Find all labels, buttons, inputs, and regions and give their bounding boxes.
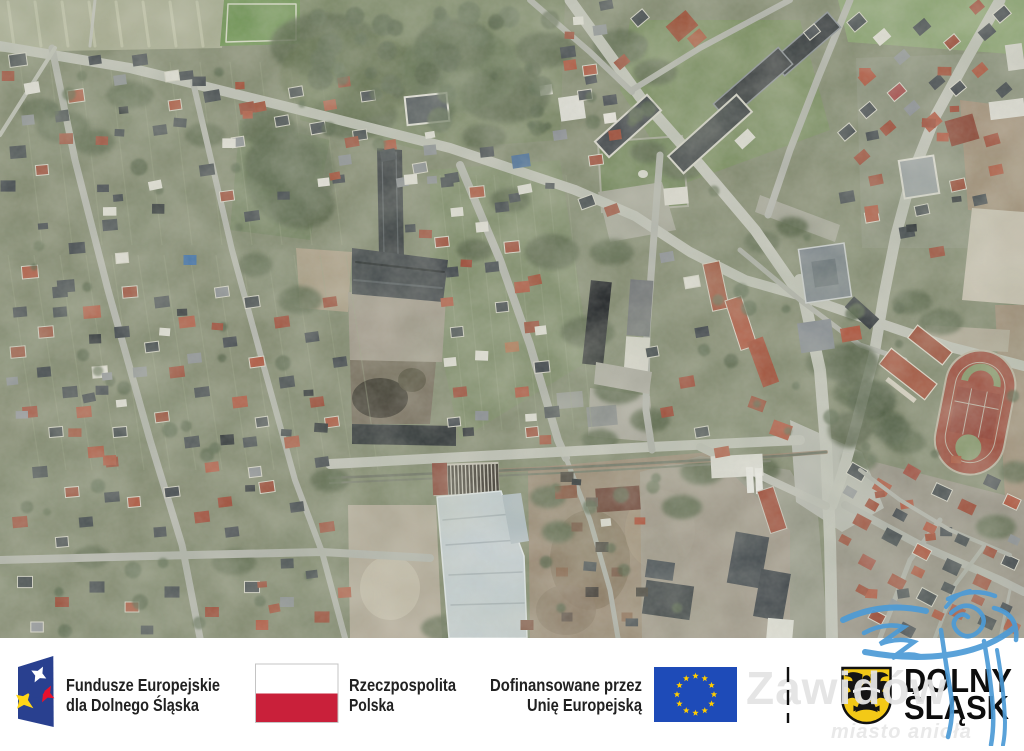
svg-text:Zawidów: Zawidów [746,662,947,714]
svg-text:dla Dolnego Śląska: dla Dolnego Śląska [66,694,199,715]
svg-text:Fundusze Europejskie: Fundusze Europejskie [66,675,220,695]
svg-text:Rzeczpospolita: Rzeczpospolita [349,675,456,695]
svg-text:Polska: Polska [349,695,394,715]
svg-text:Dofinansowane przez: Dofinansowane przez [490,675,642,695]
svg-text:Unię Europejską: Unię Europejską [527,695,642,715]
